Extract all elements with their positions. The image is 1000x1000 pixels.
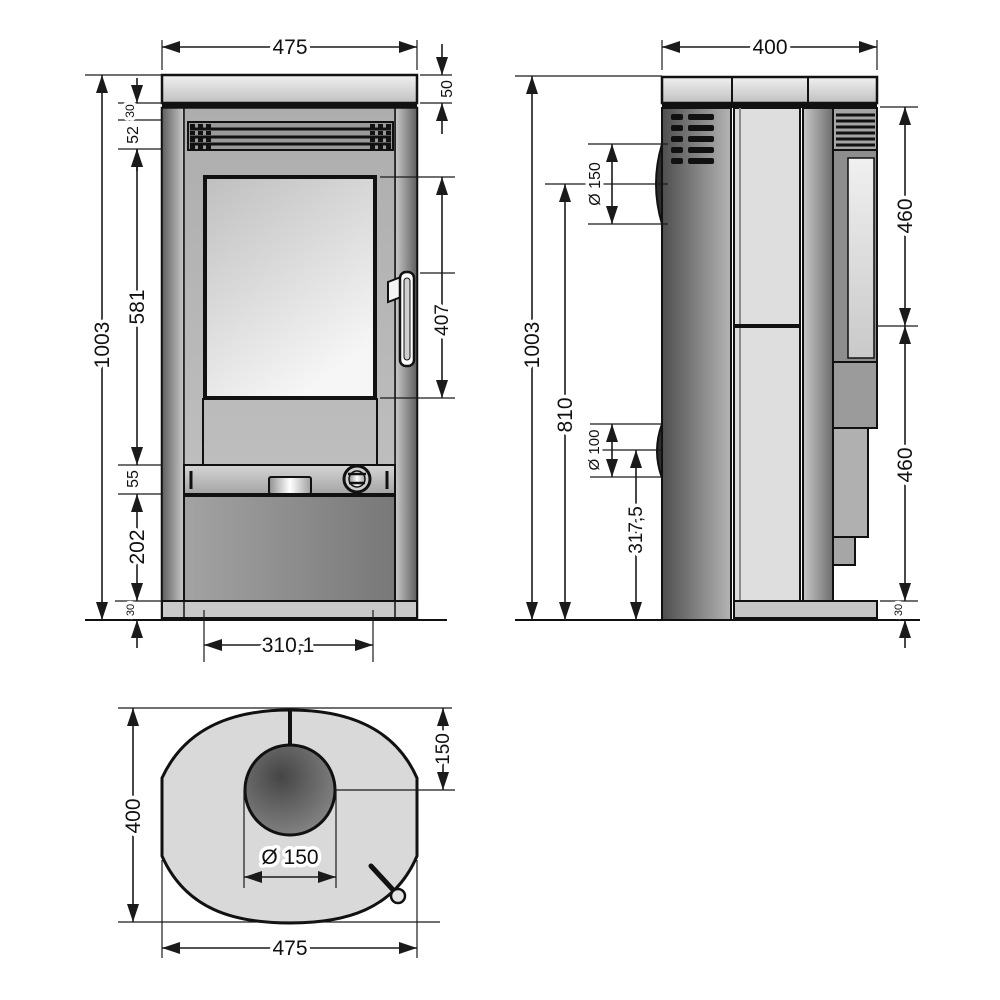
air-control-knob	[344, 466, 370, 492]
ash-drawer-handle	[269, 477, 311, 494]
side-door-glass-edge	[848, 158, 874, 358]
dim-label-band-55: 55	[125, 470, 142, 488]
side-view	[515, 77, 920, 620]
flue-collar-top	[245, 745, 335, 835]
side-plinth	[734, 601, 877, 618]
dim-label-rear-outlet-diameter: Ø 100	[586, 430, 603, 471]
front-plinth	[162, 601, 417, 618]
dim-label-door-width: 310,1	[262, 634, 315, 657]
dim-label-flue-diameter: Ø 150	[587, 162, 604, 206]
drawing-canvas: 475 50 30 52 581 55 202	[0, 0, 1000, 1000]
door-glass	[205, 177, 375, 398]
front-vent-grille	[188, 122, 393, 150]
dim-side-depth-400: 400	[662, 36, 877, 70]
dim-label-front-height: 1003	[91, 322, 114, 369]
dim-label-panel-upper: 460	[894, 198, 917, 233]
dim-front-height-1003: 1003	[85, 75, 162, 620]
dim-label-panel-lower: 460	[894, 447, 917, 482]
rear-outlet-bulge	[657, 424, 662, 478]
dim-flue-height-810: 810	[554, 184, 577, 620]
top-plate-front	[162, 75, 417, 103]
dim-label-top-depth: 400	[122, 798, 145, 833]
front-left-pillar	[162, 108, 184, 601]
top-view	[162, 710, 455, 923]
dim-label-gap-30: 30	[123, 104, 137, 118]
side-step-block-small	[833, 537, 855, 565]
dim-label-top-width: 475	[272, 937, 307, 960]
dim-label-flue-height: 810	[554, 397, 577, 432]
dim-plate-50: 50	[420, 44, 456, 134]
dim-label-side-plinth: 30	[893, 604, 905, 616]
dim-top-depth-400: 400	[122, 708, 145, 922]
dim-flue-offset-150: 150	[433, 708, 454, 790]
stove-dimension-drawing: 475 50 30 52 581 55 202	[0, 0, 1000, 1000]
dim-flue-diameter-150: Ø 150	[545, 144, 668, 224]
top-plate-side	[662, 77, 877, 103]
dim-label-flue-offset: 150	[433, 733, 454, 765]
side-front-frame	[803, 108, 833, 601]
dim-label-top-flue-diameter: Ø 150	[261, 846, 318, 869]
handle-knob	[391, 889, 405, 903]
dim-label-side-depth: 400	[752, 36, 787, 59]
dim-rear-outlet-100: Ø 100	[586, 424, 662, 477]
side-rear-column	[662, 108, 731, 620]
dim-label-ash-202: 202	[126, 529, 149, 564]
side-panel	[734, 108, 800, 601]
ash-door-panel	[184, 496, 395, 601]
dim-rear-outlet-height-317: 317,5	[626, 450, 647, 620]
side-door-lower	[833, 362, 877, 428]
dim-label-rear-outlet-height: 317,5	[626, 506, 647, 554]
dim-front-width-475: 475	[162, 36, 417, 70]
dim-label-plinth-30: 30	[125, 604, 137, 616]
side-step-block	[833, 428, 868, 537]
control-band	[184, 465, 395, 494]
dim-label-plate: 50	[439, 80, 456, 98]
dim-front-left-chain: 30 52 581 55 202 30	[115, 78, 162, 648]
dim-label-vent-52: 52	[125, 126, 142, 144]
dim-label-glass: 407	[432, 304, 453, 336]
dim-label-upper-581: 581	[126, 289, 149, 324]
dim-label-side-height: 1003	[521, 322, 544, 369]
dim-label-front-width: 475	[272, 36, 307, 59]
dim-side-right-chain: 460 460 30	[877, 107, 918, 648]
